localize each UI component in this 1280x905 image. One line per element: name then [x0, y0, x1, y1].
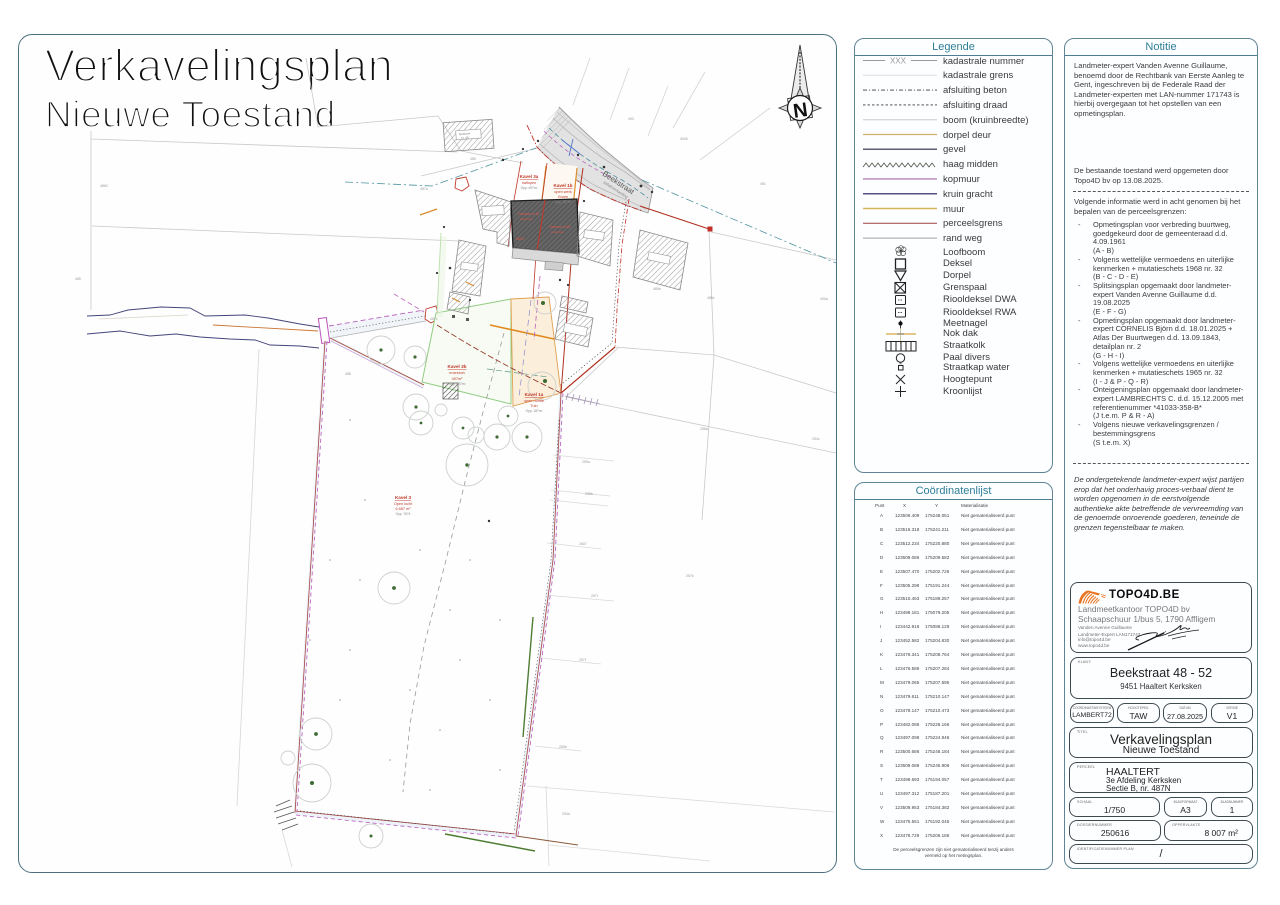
svg-text:254c: 254c — [812, 437, 820, 441]
svg-text:489b: 489b — [653, 287, 661, 291]
svg-text:woonhuis: woonhuis — [520, 217, 533, 221]
svg-text:Opp: 187m²: Opp: 187m² — [526, 409, 543, 413]
svg-text:258b: 258b — [585, 492, 593, 496]
svg-text:256a: 256a — [700, 427, 708, 431]
svg-text:Kavel 1b: Kavel 1b — [554, 183, 573, 188]
svg-text:492b: 492b — [680, 137, 688, 141]
svg-text:woonhuis: woonhuis — [551, 230, 564, 234]
svg-text:Kavel 3b: Kavel 3b — [448, 364, 467, 369]
svg-text:open ruimte: open ruimte — [524, 399, 544, 403]
svg-text:487N: 487N — [516, 237, 524, 241]
svg-text:Kavel 3a: Kavel 3a — [520, 174, 539, 179]
svg-text:XXX: XXX — [890, 57, 907, 66]
svg-text:259a: 259a — [582, 460, 590, 464]
svg-text:2607: 2607 — [579, 542, 587, 546]
svg-text:487L: 487L — [430, 317, 438, 321]
svg-text:489: 489 — [470, 157, 476, 161]
svg-text:Gebouw nr 50: Gebouw nr 50 — [549, 225, 570, 229]
svg-text:257r: 257r — [591, 594, 599, 598]
svg-text:Kavel 3: Kavel 3 — [395, 495, 412, 500]
svg-text:257f: 257f — [579, 658, 586, 662]
svg-text:Opp: 497m²: Opp: 497m² — [521, 186, 538, 190]
svg-text:Tuin: Tuin — [530, 404, 537, 408]
svg-text:488: 488 — [345, 372, 351, 376]
svg-text:Opp: 187m²: Opp: 187m² — [555, 200, 572, 204]
svg-text:485: 485 — [75, 277, 81, 281]
svg-text:255b: 255b — [559, 745, 567, 749]
svg-text:N: N — [792, 99, 809, 123]
svg-text:Open lucht: Open lucht — [394, 502, 413, 506]
svg-text:nr. 46: nr. 46 — [461, 135, 469, 140]
svg-text:moestuin: moestuin — [449, 371, 464, 375]
svg-text:497m²: 497m² — [452, 377, 463, 381]
svg-text:6 687 m²: 6 687 m² — [396, 507, 412, 511]
svg-text:490a: 490a — [820, 297, 828, 301]
svg-text:257k: 257k — [686, 574, 694, 578]
svg-text:halfopen: halfopen — [522, 181, 537, 185]
svg-text:Groen: Groen — [558, 195, 569, 199]
svg-text:491: 491 — [760, 182, 766, 186]
svg-text:488c: 488c — [707, 296, 715, 300]
svg-text:open werk: open werk — [554, 190, 572, 194]
svg-text:486C: 486C — [100, 184, 109, 188]
svg-text:493: 493 — [628, 117, 634, 121]
svg-text:Kavel 1a: Kavel 1a — [525, 392, 544, 397]
svg-text:Opp: 7674: Opp: 7674 — [396, 512, 411, 516]
svg-text:Opp: 497m²: Opp: 497m² — [449, 382, 466, 386]
svg-text:487a: 487a — [420, 187, 428, 191]
svg-text:254d: 254d — [562, 812, 570, 816]
svg-text:Gebouw nr 48: Gebouw nr 48 — [518, 212, 539, 216]
